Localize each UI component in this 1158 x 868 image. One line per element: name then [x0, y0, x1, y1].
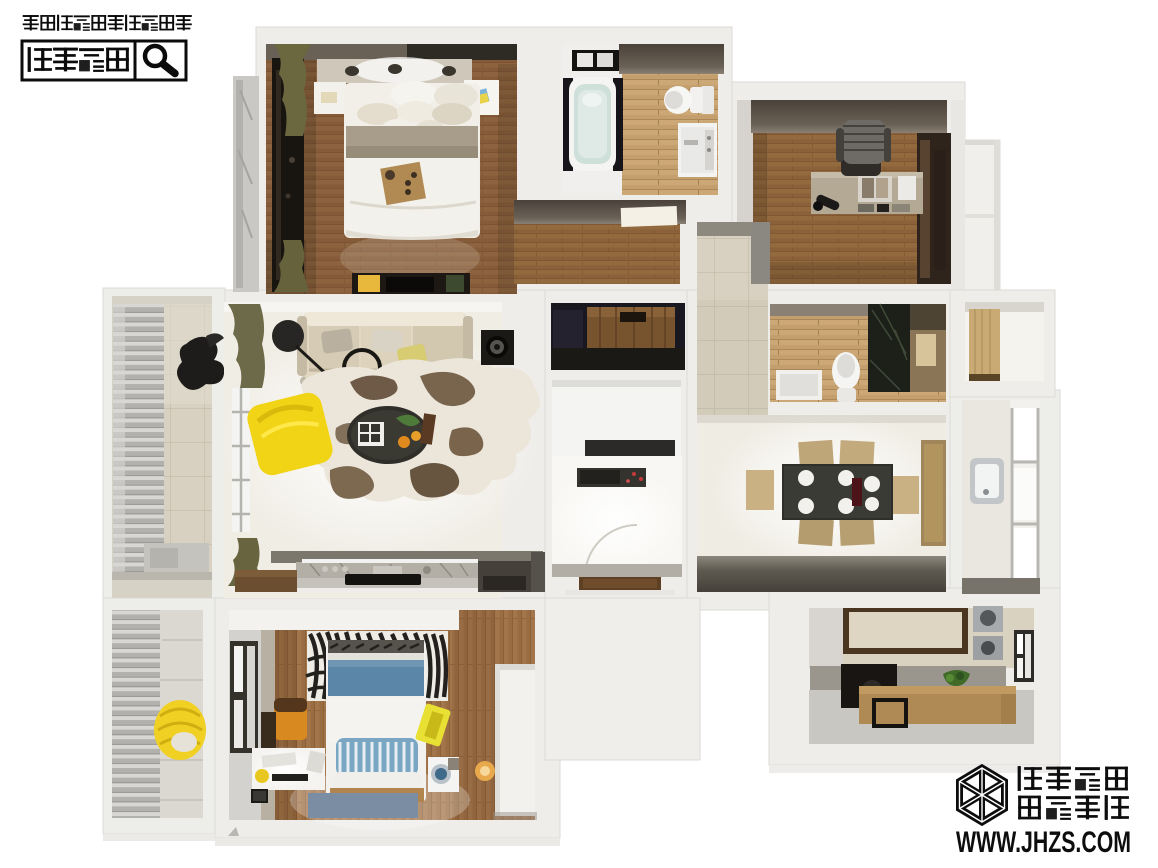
- svg-text:WWW.JHZS.COM: WWW.JHZS.COM: [956, 826, 1131, 859]
